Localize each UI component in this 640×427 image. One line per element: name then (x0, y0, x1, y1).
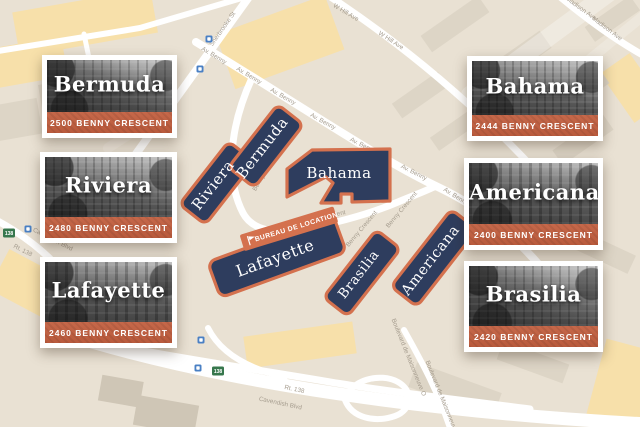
street-label-av-benny: Av. Benny (269, 87, 298, 108)
card-address: 2460 BENNY CRESCENT (45, 322, 172, 343)
transit-stop-icon (198, 337, 205, 344)
street-label-cavendish: Cavendish Blvd (258, 396, 303, 412)
building-photo: Lafayette (45, 262, 172, 322)
card-title: Riviera (45, 173, 172, 198)
property-card-riviera[interactable]: Riviera 2480 BENNY CRESCENT (40, 152, 177, 243)
property-card-brasilia[interactable]: Brasilia 2420 BENNY CRESCENT (464, 261, 603, 352)
street-label-w-hill: W Hill Ave (377, 30, 405, 52)
card-title: Lafayette (45, 278, 172, 303)
card-address: 2400 BENNY CRESCENT (469, 224, 598, 245)
card-title: Bermuda (47, 72, 172, 97)
transit-stop-icon (206, 36, 213, 43)
building-photo: Bahama (472, 61, 598, 115)
street-label-av-benny: Av. Benny (309, 112, 338, 132)
card-title: Americana (469, 179, 598, 204)
card-address: 2500 BENNY CRESCENT (47, 112, 172, 133)
property-card-americana[interactable]: Americana 2400 BENNY CRESCENT (464, 158, 603, 250)
route-138-shield-icon: 138 (212, 367, 224, 376)
building-photo: Bermuda (47, 60, 172, 112)
card-title: Brasilia (469, 282, 598, 307)
svg-text:138: 138 (214, 369, 223, 375)
property-card-bermuda[interactable]: Bermuda 2500 BENNY CRESCENT (42, 55, 177, 138)
card-address: 2444 BENNY CRESCENT (472, 115, 598, 136)
card-address: 2480 BENNY CRESCENT (45, 217, 172, 238)
building-photo: Riviera (45, 157, 172, 217)
property-card-lafayette[interactable]: Lafayette 2460 BENNY CRESCENT (40, 257, 177, 348)
building-photo: Americana (469, 163, 598, 224)
card-address: 2420 BENNY CRESCENT (469, 326, 598, 347)
property-card-bahama[interactable]: Bahama 2444 BENNY CRESCENT (467, 56, 603, 141)
transit-stop-icon (197, 66, 204, 73)
map-page: Sherbrooke St Av. Benny Av. Benny Av. Be… (0, 0, 640, 427)
map-label-bahama: Bahama (306, 164, 371, 182)
building-photo: Brasilia (469, 266, 598, 326)
card-title: Bahama (472, 74, 598, 99)
transit-stop-icon (25, 226, 32, 233)
route-138-shield-icon: 138 (3, 229, 15, 238)
svg-text:138: 138 (5, 231, 14, 237)
transit-stop-icon (195, 365, 202, 372)
